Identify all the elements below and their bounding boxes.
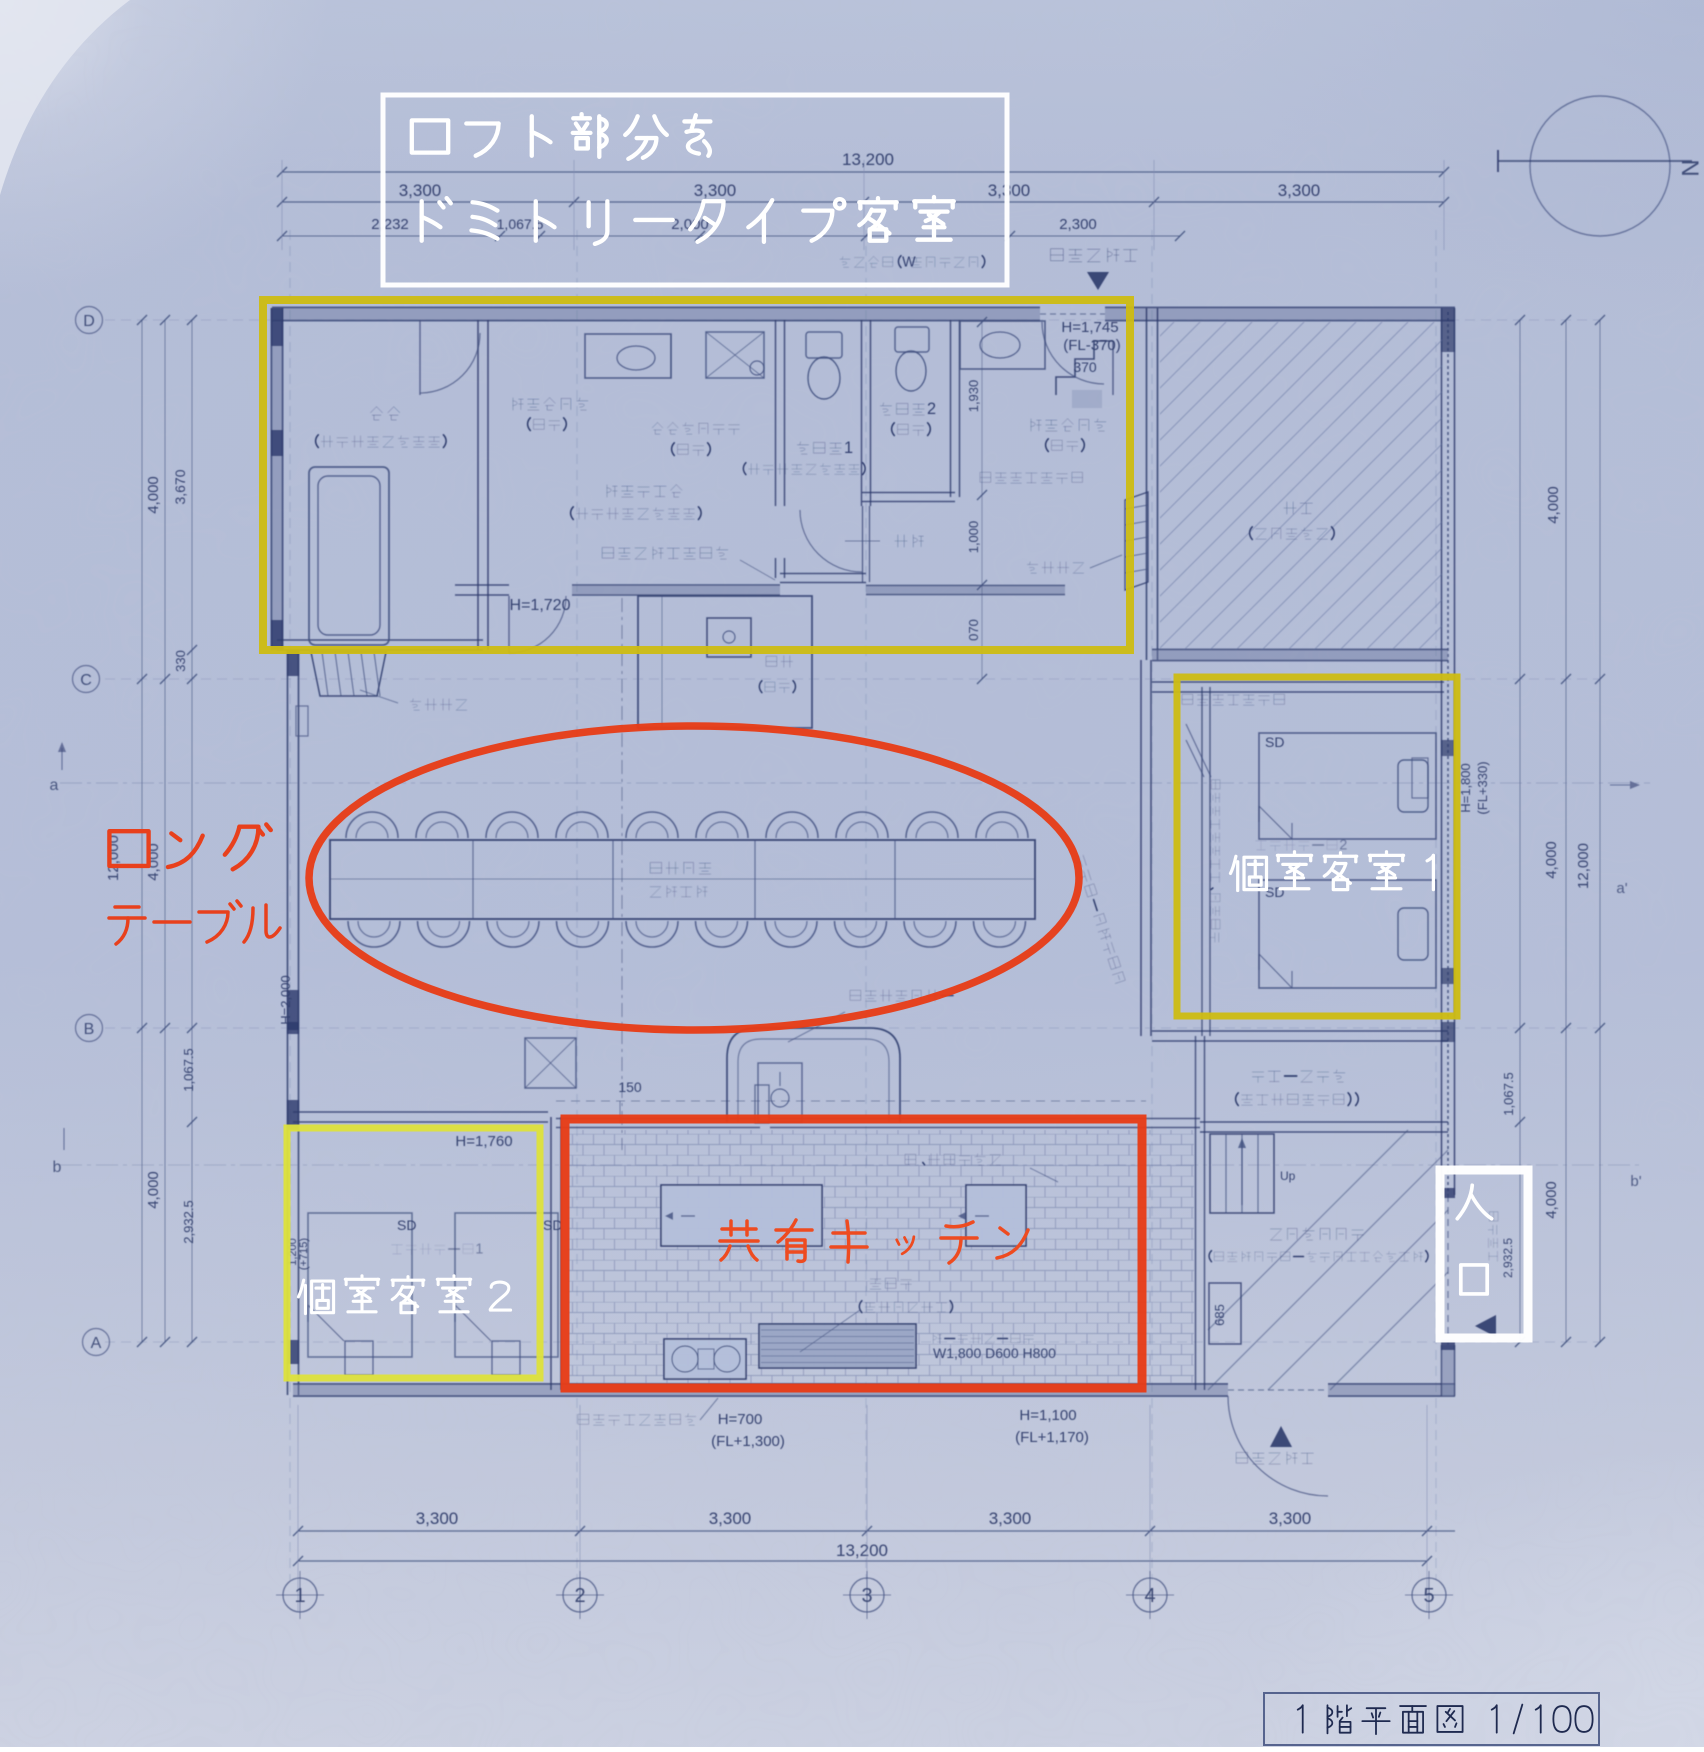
svg-text:SD: SD xyxy=(543,1217,562,1233)
svg-text:070: 070 xyxy=(966,619,981,641)
svg-text:b': b' xyxy=(1630,1173,1641,1190)
svg-text:3: 3 xyxy=(861,1585,872,1607)
svg-text:1,930: 1,930 xyxy=(966,380,981,413)
svg-text:1,067.5: 1,067.5 xyxy=(181,1048,196,1091)
svg-text:4,000: 4,000 xyxy=(145,1171,162,1209)
svg-text:H=1,745: H=1,745 xyxy=(1061,319,1118,336)
svg-text:(+715): (+715) xyxy=(298,1238,310,1270)
svg-text:685: 685 xyxy=(1212,1304,1227,1326)
svg-text:370: 370 xyxy=(1073,359,1097,375)
svg-text:4: 4 xyxy=(1144,1585,1155,1607)
svg-text:4,000: 4,000 xyxy=(1543,1181,1560,1219)
svg-text:1,067.5: 1,067.5 xyxy=(1501,1072,1516,1115)
svg-text:H=1,100: H=1,100 xyxy=(1019,1407,1076,1424)
svg-text:2: 2 xyxy=(927,400,936,418)
svg-text:13,200: 13,200 xyxy=(842,150,894,169)
svg-text:Up: Up xyxy=(1280,1169,1296,1183)
svg-text:H=1,720: H=1,720 xyxy=(510,597,571,614)
svg-text:3,300: 3,300 xyxy=(416,1509,459,1528)
svg-text:3,670: 3,670 xyxy=(172,469,188,504)
svg-text:D: D xyxy=(83,313,95,330)
svg-text:4,000: 4,000 xyxy=(1545,486,1562,524)
svg-text:H=700: H=700 xyxy=(718,1411,763,1428)
svg-text:a': a' xyxy=(1616,880,1627,897)
svg-text:SD: SD xyxy=(397,1217,416,1233)
svg-text:2,300: 2,300 xyxy=(1059,216,1097,233)
svg-text:13,200: 13,200 xyxy=(836,1541,888,1560)
svg-text:(FL+330): (FL+330) xyxy=(1475,761,1490,814)
svg-text:150: 150 xyxy=(618,1079,642,1095)
svg-text:B: B xyxy=(84,1021,95,1038)
svg-text:330: 330 xyxy=(173,650,188,672)
svg-text:N: N xyxy=(1676,159,1703,176)
svg-text:b: b xyxy=(53,1159,62,1176)
svg-text:H=2,000: H=2,000 xyxy=(278,975,293,1025)
svg-text:3,300: 3,300 xyxy=(1269,1509,1312,1528)
svg-text:3,300: 3,300 xyxy=(1278,181,1321,200)
svg-text:H=1,760: H=1,760 xyxy=(455,1133,512,1150)
svg-text:a: a xyxy=(50,777,59,794)
svg-text:12,000: 12,000 xyxy=(1575,843,1592,889)
svg-text:1: 1 xyxy=(475,1242,483,1258)
svg-text:W1,800 D600 H800: W1,800 D600 H800 xyxy=(933,1345,1056,1361)
svg-text:C: C xyxy=(80,672,92,689)
svg-text:4,000: 4,000 xyxy=(145,476,162,514)
svg-text:2,932.5: 2,932.5 xyxy=(1501,1238,1515,1278)
svg-text:(FL-370): (FL-370) xyxy=(1063,337,1121,354)
svg-text:2: 2 xyxy=(574,1585,585,1607)
svg-text:4,000: 4,000 xyxy=(1543,841,1560,879)
svg-text:2,232: 2,232 xyxy=(371,216,409,233)
svg-text:2,932.5: 2,932.5 xyxy=(181,1200,196,1243)
svg-text:3,300: 3,300 xyxy=(399,181,442,200)
svg-text:3,300: 3,300 xyxy=(709,1509,752,1528)
svg-text:A: A xyxy=(91,1335,102,1352)
svg-text:1: 1 xyxy=(294,1585,305,1607)
svg-text:(FL+1,300): (FL+1,300) xyxy=(711,1433,785,1450)
svg-text:1,000: 1,000 xyxy=(966,521,981,554)
svg-text:3,300: 3,300 xyxy=(989,1509,1032,1528)
svg-text:1: 1 xyxy=(844,439,853,457)
svg-text:3,300: 3,300 xyxy=(694,181,737,200)
svg-text:5: 5 xyxy=(1423,1585,1434,1607)
svg-text:W: W xyxy=(902,255,916,271)
svg-text:(FL+1,170): (FL+1,170) xyxy=(1015,1429,1089,1446)
svg-text:SD: SD xyxy=(1265,734,1284,750)
